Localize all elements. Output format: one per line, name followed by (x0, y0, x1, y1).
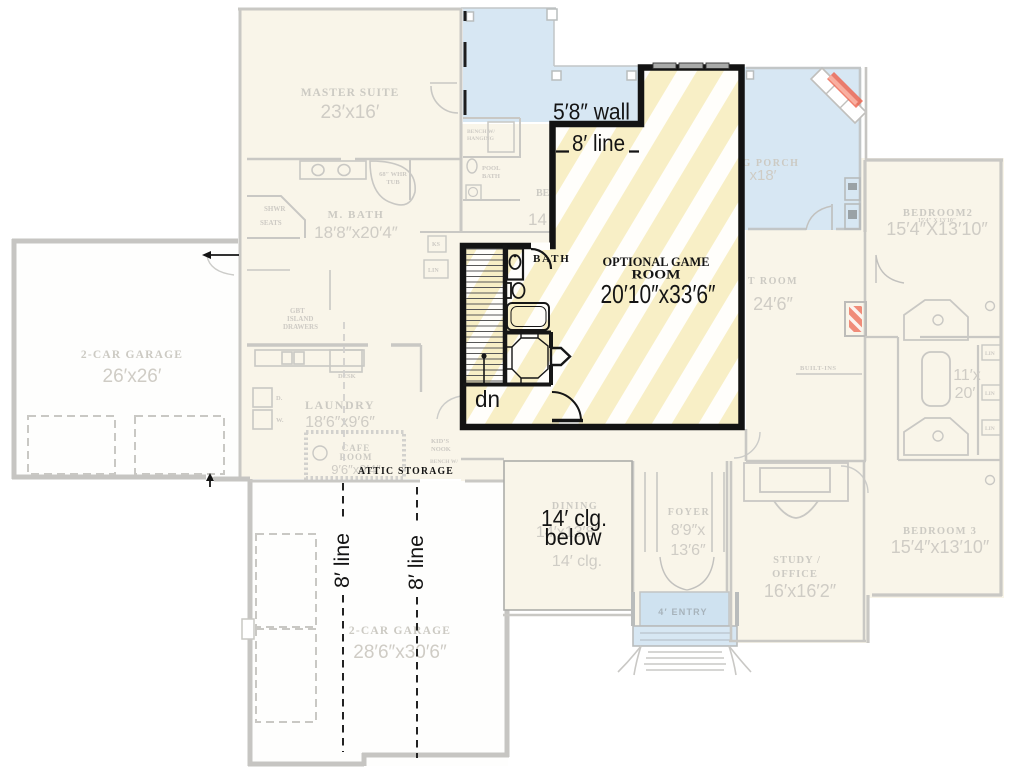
svg-text:15′4″ X 13′10″: 15′4″ X 13′10″ (918, 218, 956, 224)
svg-text:18′6″x9′6″: 18′6″x9′6″ (305, 414, 375, 431)
svg-text:x18′: x18′ (750, 167, 777, 184)
svg-text:18′8″x20′4″: 18′8″x20′4″ (314, 223, 398, 242)
svg-text:14: 14 (528, 210, 547, 229)
svg-text:8′ line: 8′ line (572, 130, 625, 156)
svg-text:16′x16′2″: 16′x16′2″ (764, 581, 837, 601)
svg-text:28′6″x30′6″: 28′6″x30′6″ (353, 642, 447, 663)
svg-text:13′6″: 13′6″ (670, 542, 706, 559)
svg-text:23′x16′: 23′x16′ (321, 102, 380, 123)
svg-text:dn: dn (475, 386, 500, 412)
svg-text:BE: BE (536, 188, 550, 199)
svg-text:D.: D. (276, 395, 283, 402)
svg-text:DESK: DESK (338, 373, 356, 380)
svg-text:SEATS: SEATS (260, 219, 282, 227)
svg-text:14′ clg.: 14′ clg. (552, 553, 602, 570)
svg-text:BEDROOM 3: BEDROOM 3 (903, 526, 977, 537)
svg-text:KID’S: KID’S (431, 438, 449, 445)
svg-text:W.: W. (276, 417, 284, 424)
svg-text:BATH: BATH (482, 173, 500, 180)
svg-text:SHWR: SHWR (264, 205, 286, 213)
svg-text:LIN: LIN (985, 391, 995, 397)
svg-text:BENCH W/: BENCH W/ (467, 129, 495, 135)
svg-text:4′ ENTRY: 4′ ENTRY (658, 607, 707, 617)
svg-text:BATH: BATH (533, 253, 571, 265)
svg-text:2-CAR GARAGE: 2-CAR GARAGE (349, 625, 451, 637)
svg-text:2-CAR GARAGE: 2-CAR GARAGE (81, 349, 183, 361)
svg-text:15′4″x13′10″: 15′4″x13′10″ (891, 537, 990, 557)
svg-text:8′ line: 8′ line (331, 533, 354, 588)
svg-text:NOOK: NOOK (431, 446, 451, 453)
svg-text:FOYER: FOYER (668, 507, 711, 518)
svg-text:STUDY /: STUDY / (773, 555, 821, 566)
svg-text:LIN: LIN (985, 351, 995, 357)
svg-text:DRAWERS: DRAWERS (283, 323, 318, 331)
svg-text:LAUNDRY: LAUNDRY (305, 398, 375, 412)
svg-text:ATTIC STORAGE: ATTIC STORAGE (358, 465, 454, 477)
svg-text:ISLAND: ISLAND (287, 315, 313, 323)
svg-text:M. BATH: M. BATH (328, 209, 385, 221)
svg-text:below: below (545, 524, 602, 550)
svg-text:8′9″x: 8′9″x (671, 522, 705, 539)
svg-text:MASTER SUITE: MASTER SUITE (301, 87, 400, 99)
svg-text:8′ line: 8′ line (405, 535, 428, 590)
svg-text:TUB: TUB (386, 179, 400, 186)
svg-text:LIN: LIN (985, 426, 995, 432)
svg-text:20′: 20′ (955, 385, 976, 402)
svg-text:OFFICE: OFFICE (772, 569, 818, 580)
svg-text:BUILT-INS: BUILT-INS (800, 365, 837, 372)
svg-text:LIN: LIN (428, 268, 439, 274)
svg-text:24′6″: 24′6″ (753, 294, 793, 314)
svg-text:HANGING: HANGING (467, 136, 495, 142)
svg-text:26′x26′: 26′x26′ (103, 366, 162, 387)
svg-text:5′8″ wall: 5′8″ wall (553, 99, 630, 125)
svg-text:11′x: 11′x (953, 367, 981, 384)
svg-text:T ROOM: T ROOM (748, 276, 798, 287)
svg-text:POOL: POOL (482, 165, 501, 172)
svg-text:68″ WHR: 68″ WHR (379, 171, 407, 178)
svg-text:20′10″x33′6″: 20′10″x33′6″ (601, 279, 716, 309)
svg-text:GBT: GBT (290, 307, 305, 315)
svg-text:KS: KS (432, 242, 441, 248)
